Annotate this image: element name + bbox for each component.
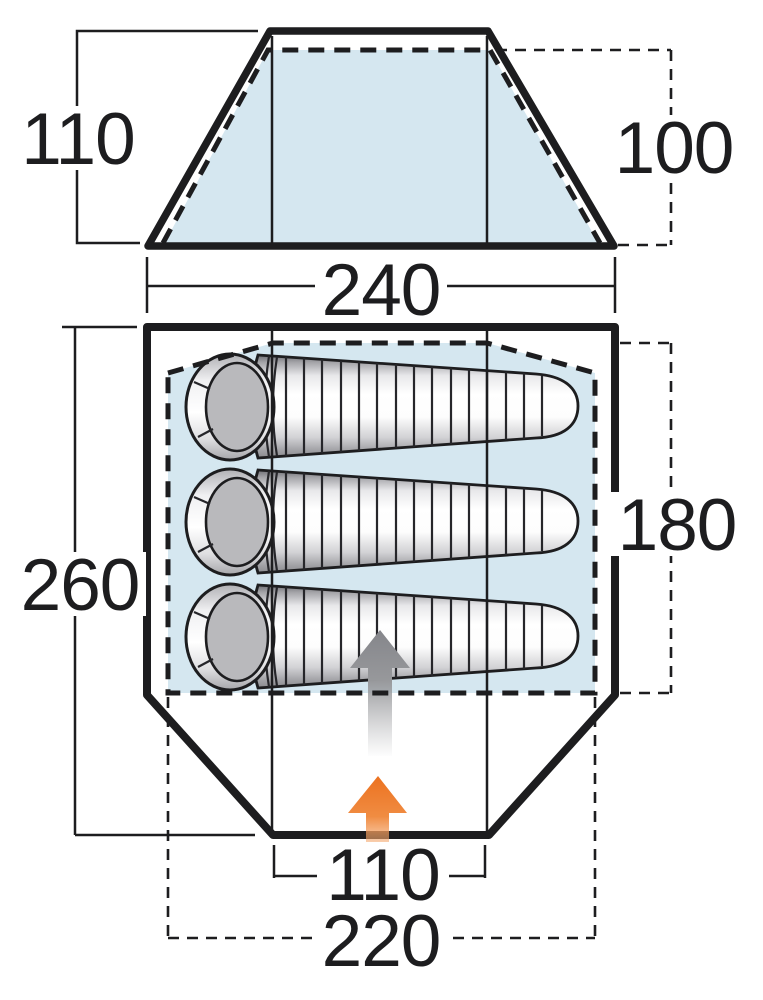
tent-dimension-diagram: 110 100 240 260 180 110 220 <box>0 0 763 1000</box>
elevation-height-label: 110 <box>21 99 134 180</box>
plan-length-label: 260 <box>21 545 140 626</box>
front-elevation-view <box>148 31 614 246</box>
elevation-inner-height-label: 100 <box>615 108 734 189</box>
floor-plan-view <box>147 327 615 861</box>
elevation-inner-fill <box>163 50 600 246</box>
elevation-width-label: 240 <box>322 250 441 331</box>
plan-inner-width-label: 220 <box>322 901 441 982</box>
plan-inner-length-label: 180 <box>618 485 737 566</box>
diagram-canvas: 110 100 240 260 180 110 220 <box>0 0 763 1000</box>
